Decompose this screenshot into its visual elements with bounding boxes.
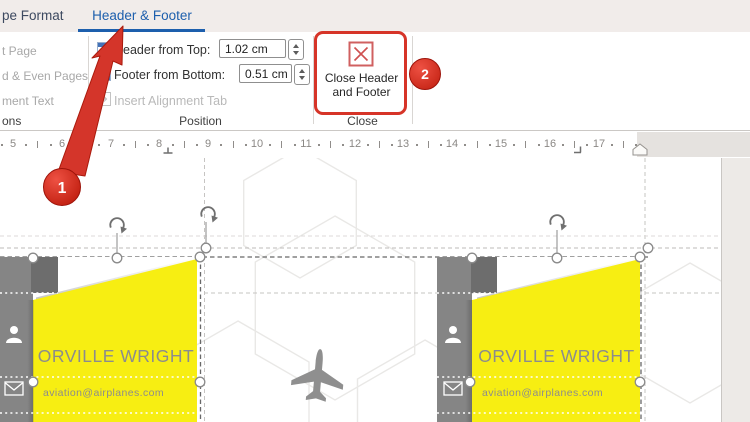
center-tab-stop-marker[interactable] — [164, 148, 173, 154]
document-graphics — [0, 158, 750, 422]
app-background — [721, 158, 750, 422]
option-different-odd-even-pages: d & Even Pages — [2, 69, 88, 83]
ruler-tick — [440, 144, 442, 146]
selection-handle[interactable] — [201, 243, 211, 253]
group-divider — [88, 36, 89, 124]
options-group-label: ons — [2, 114, 21, 128]
ruler-tick — [184, 141, 185, 148]
ruler-tick — [269, 144, 271, 146]
ruler-tick — [379, 141, 380, 148]
card-name-text: ORVILLE WRIGHT — [473, 346, 640, 367]
position-group-label: Position — [88, 114, 313, 128]
selection-handle[interactable] — [28, 377, 38, 387]
card-email-text: aviation@airplanes.com — [482, 387, 603, 399]
ruler-tick — [525, 141, 526, 148]
card-email-text: aviation@airplanes.com — [43, 387, 164, 399]
selection-handle[interactable] — [467, 253, 477, 263]
footer-from-bottom-icon — [97, 67, 111, 81]
selection-handle[interactable] — [112, 253, 122, 263]
ruler-tick — [281, 141, 282, 148]
ruler-tick — [135, 141, 136, 148]
close-group-label: Close — [313, 114, 412, 128]
ruler-tick — [611, 144, 613, 146]
option-show-document-text: ment Text — [2, 94, 54, 108]
ruler-tick — [98, 144, 100, 146]
ribbon-tab-bar: pe Format Header & Footer — [0, 0, 750, 32]
ruler-tick — [1, 144, 3, 146]
selection-handle[interactable] — [635, 377, 645, 387]
footer-from-bottom-stepper[interactable] — [294, 64, 310, 85]
ruler-tick — [367, 144, 369, 146]
ruler-tick — [196, 144, 198, 146]
ruler-tick — [477, 141, 478, 148]
ruler-tick — [574, 141, 575, 148]
ruler-tick — [330, 141, 331, 148]
ruler-tick — [635, 144, 637, 146]
ruler-tick — [233, 141, 234, 148]
ruler-tick — [538, 144, 540, 146]
ruler-tick — [147, 144, 149, 146]
ruler-tick — [50, 144, 52, 146]
selection-handle[interactable] — [195, 252, 205, 262]
ruler-tick — [172, 144, 174, 146]
ruler-tick — [586, 144, 588, 146]
ruler-tick — [562, 144, 564, 146]
selection-handle[interactable] — [28, 253, 38, 263]
selection-handle[interactable] — [552, 253, 562, 263]
annotation-highlight-box — [314, 31, 407, 115]
ruler-tick — [245, 144, 247, 146]
option-different-first-page: t Page — [2, 44, 37, 58]
ruler-tick — [123, 144, 125, 146]
ruler-tick — [391, 144, 393, 146]
selection-handle[interactable] — [635, 252, 645, 262]
ruler-tick — [86, 141, 87, 148]
insert-alignment-tab-icon — [97, 92, 111, 106]
tab-shape-format[interactable]: pe Format — [2, 0, 64, 32]
header-from-top-label: Header from Top: — [114, 43, 210, 57]
selection-handle[interactable] — [643, 243, 653, 253]
ribbon: t Page d & Even Pages ment Text ons Head… — [0, 32, 750, 131]
footer-from-bottom-input[interactable] — [239, 64, 292, 83]
ruler-tick — [25, 144, 27, 146]
insert-alignment-tab-label: Insert Alignment Tab — [114, 94, 227, 108]
ruler-tick — [464, 144, 466, 146]
ruler-tick — [74, 144, 76, 146]
card-name-text: ORVILLE WRIGHT — [33, 346, 199, 367]
word-window: pe Format Header & Footer t Page d & Eve… — [0, 0, 750, 422]
tab-header-footer[interactable]: Header & Footer — [80, 0, 204, 32]
ruler[interactable]: 5 6 7 8 9 10 11 12 13 14 15 16 17 — [0, 132, 750, 157]
header-from-top-stepper[interactable] — [288, 39, 304, 60]
ruler-tick — [489, 144, 491, 146]
selection-handle[interactable] — [465, 377, 475, 387]
ruler-tick — [513, 144, 515, 146]
ruler-tick — [623, 141, 624, 148]
header-from-top-input[interactable] — [219, 39, 286, 58]
selection-handle[interactable] — [195, 377, 205, 387]
footer-from-bottom-label: Footer from Bottom: — [114, 68, 225, 82]
ruler-tick — [220, 144, 222, 146]
ruler-tick — [416, 144, 418, 146]
ruler-tick — [318, 144, 320, 146]
document-canvas: ORVILLE WRIGHT aviation@airplanes.com OR… — [0, 158, 750, 422]
ruler-tick — [342, 144, 344, 146]
ruler-tick — [428, 141, 429, 148]
header-from-top-icon — [97, 42, 111, 56]
ruler-tick — [294, 144, 296, 146]
annotation-step-2-badge: 2 — [409, 58, 441, 90]
ruler-tick — [37, 141, 38, 148]
